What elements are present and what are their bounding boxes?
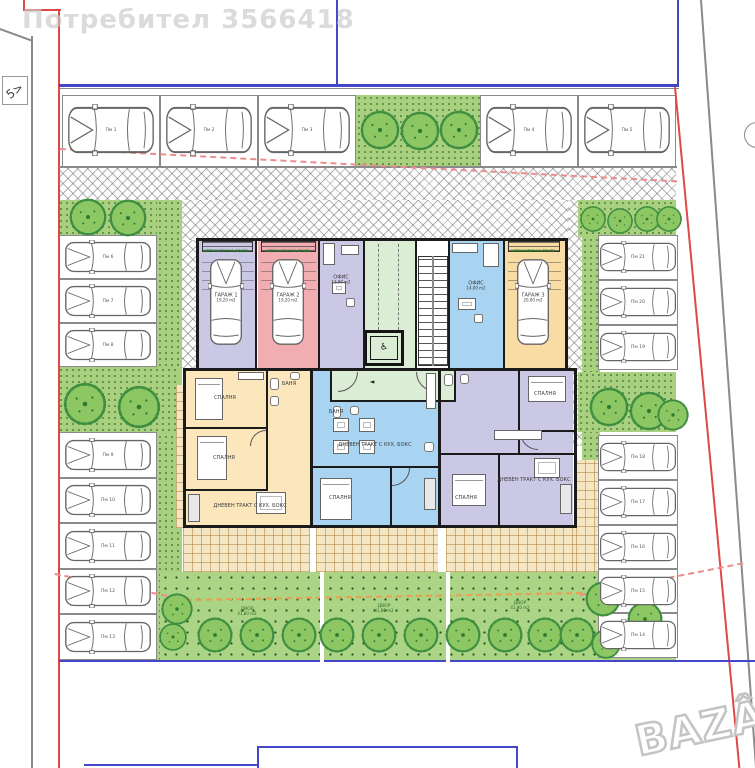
plan-label-area: 19,20 m2 xyxy=(276,299,299,304)
plan-label-area: 19,20 m2 xyxy=(214,299,237,304)
plan-label: ДВОР 41,80 m2 xyxy=(510,601,529,611)
plan-label: АВТОМАТИЧНА ВРАТА xyxy=(204,249,249,253)
plan-label-title: ДНЕВЕН ТРАКТ С КУХ. БОКС xyxy=(497,477,570,483)
plan-label: ДВОР 41,80 m2 xyxy=(374,604,393,614)
plan-label: ОФИС 13,90 m2 xyxy=(331,275,350,286)
plan-label-area: 14,00 m2 xyxy=(466,287,485,292)
plan-label: ГАРАЖ 3 20,00 m2 xyxy=(521,293,544,304)
plan-label: СПАЛНЯ xyxy=(329,495,351,501)
plan-label: АВТОМАТИЧНА ВРАТА xyxy=(511,249,556,253)
plan-label: ГАРАЖ 2 19,20 m2 xyxy=(276,293,299,304)
street-sign-text: 5> xyxy=(4,80,27,102)
plan-label-title: СПАЛНЯ xyxy=(213,455,235,461)
plan-label-title: АВТОМАТИЧНА ВРАТА xyxy=(204,249,249,253)
street-sign: 5> xyxy=(2,76,28,105)
plan-label: СПАЛНЯ xyxy=(213,455,235,461)
plan-label-title: ДНЕВЕН ТРАКТ С КУХ. БОКС xyxy=(338,442,411,448)
plan-label: ГАРАЖ 1 19,20 m2 xyxy=(214,293,237,304)
user-watermark: Потребител 3566418 xyxy=(22,5,355,35)
plan-label: ДНЕВЕН ТРАКТ С КУХ. БОКС xyxy=(213,503,286,509)
plan-label-title: ◄ xyxy=(370,378,375,385)
plan-label-title: СПАЛНЯ xyxy=(329,495,351,501)
plan-label-area: 20,00 m2 xyxy=(521,299,544,304)
labels-layer: АВТОМАТИЧНА ВРАТА АВТОМАТИЧНА ВРАТА АВТО… xyxy=(0,0,755,768)
plan-label-title: ДНЕВЕН ТРАКТ С КУХ. БОКС xyxy=(213,503,286,509)
plan-label-area: 41,80 m2 xyxy=(237,612,256,617)
plan-label: ДНЕВЕН ТРАКТ С КУХ. БОКС xyxy=(497,477,570,483)
plan-label-title: ♿ xyxy=(380,343,388,354)
plan-label-area: 13,90 m2 xyxy=(331,281,350,286)
plan-label-area: 41,80 m2 xyxy=(374,609,393,614)
plan-label-title: БАНЯ xyxy=(329,409,343,415)
plan-label: БАНЯ xyxy=(329,409,343,415)
plan-label: АВТОМАТИЧНА ВРАТА xyxy=(266,249,311,253)
plan-label: ♿ xyxy=(380,343,388,354)
plan-label: СПАЛНЯ xyxy=(534,391,556,397)
plan-label: БАНЯ xyxy=(282,381,296,387)
plan-label-title: СПАЛНЯ xyxy=(534,391,556,397)
site-plan: Пм 1 Пм 2 Пм 3 Пм 4 Пм 5 Пм 6 Пм 7 xyxy=(0,0,755,768)
plan-label-title: СПАЛНЯ xyxy=(455,495,477,501)
plan-label-title: СПАЛНЯ xyxy=(214,395,236,401)
plan-label-title: АВТОМАТИЧНА ВРАТА xyxy=(266,249,311,253)
plan-label: ◄ xyxy=(370,378,375,385)
plan-label: СПАЛНЯ xyxy=(214,395,236,401)
plan-label: СПАЛНЯ xyxy=(455,495,477,501)
plan-label: ДВОР 41,80 m2 xyxy=(237,607,256,617)
plan-label-title: БАНЯ xyxy=(282,381,296,387)
plan-label-area: 41,80 m2 xyxy=(510,606,529,611)
plan-label: ОФИС 14,00 m2 xyxy=(466,281,485,292)
plan-label: ДНЕВЕН ТРАКТ С КУХ. БОКС xyxy=(338,442,411,448)
plan-label-title: АВТОМАТИЧНА ВРАТА xyxy=(511,249,556,253)
